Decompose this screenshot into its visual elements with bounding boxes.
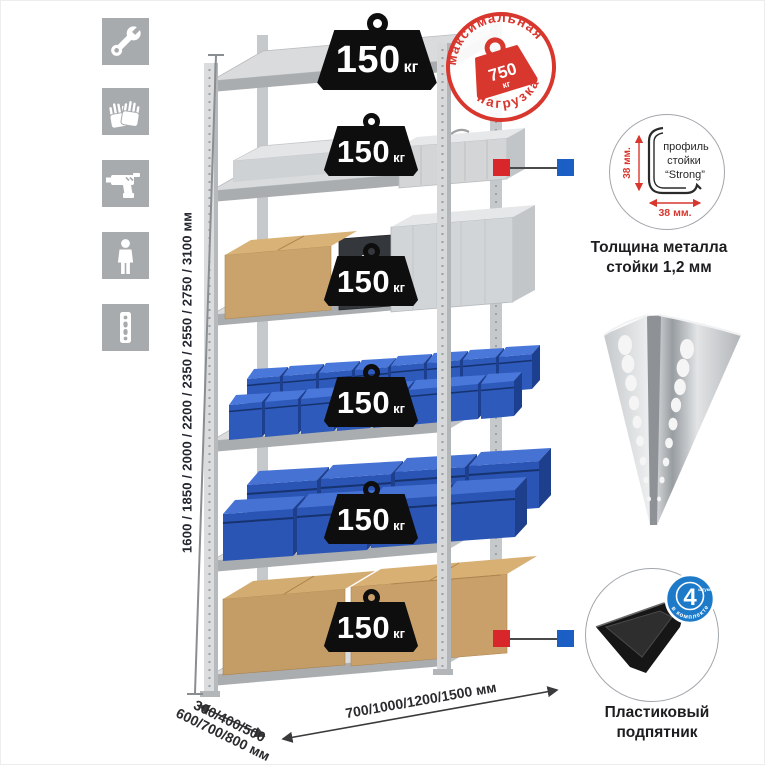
kit-count-value: 4: [683, 584, 697, 611]
person-icon: [102, 232, 149, 279]
connector-blue-square-top: [557, 159, 574, 176]
height-scale-label: 1600 / 1850 / 2000 / 2200 / 2350 / 2550 …: [180, 83, 195, 683]
kit-count-badge: 4 штуки в комплекте: [666, 575, 714, 623]
gloves-icon: [102, 88, 149, 135]
shelf-load-badge: 150кг: [323, 589, 419, 652]
connector-red-square-top: [493, 159, 510, 176]
product-infographic: 1600 / 1850 / 2000 / 2200 / 2350 / 2550 …: [0, 0, 765, 765]
shelf-load-badge: 150кг: [316, 13, 438, 90]
kit-count-word: штуки: [698, 587, 712, 592]
connector-line-bottom: [510, 638, 557, 640]
rack-profile-icon: [102, 304, 149, 351]
connector-blue-square-bottom: [557, 630, 574, 647]
connector-line-top: [510, 167, 557, 169]
profile-feature-caption: Толщина металла стойки 1,2 мм: [569, 238, 749, 278]
shelf-load-badge: 150кг: [323, 481, 419, 544]
foot-feature-circle: 4 штуки в комплекте: [585, 568, 719, 702]
foot-feature-caption: Пластиковый подпятник: [567, 703, 747, 743]
drill-icon: [102, 160, 149, 207]
connector-red-square-bottom: [493, 630, 510, 647]
shelf-load-badge: 150кг: [323, 243, 419, 306]
shelf-load-badge: 150кг: [323, 364, 419, 427]
max-load-stamp: максимальная нагрузка 750 кг: [444, 10, 558, 124]
wrench-icon: [102, 18, 149, 65]
shelf-load-badge: 150кг: [323, 113, 419, 176]
